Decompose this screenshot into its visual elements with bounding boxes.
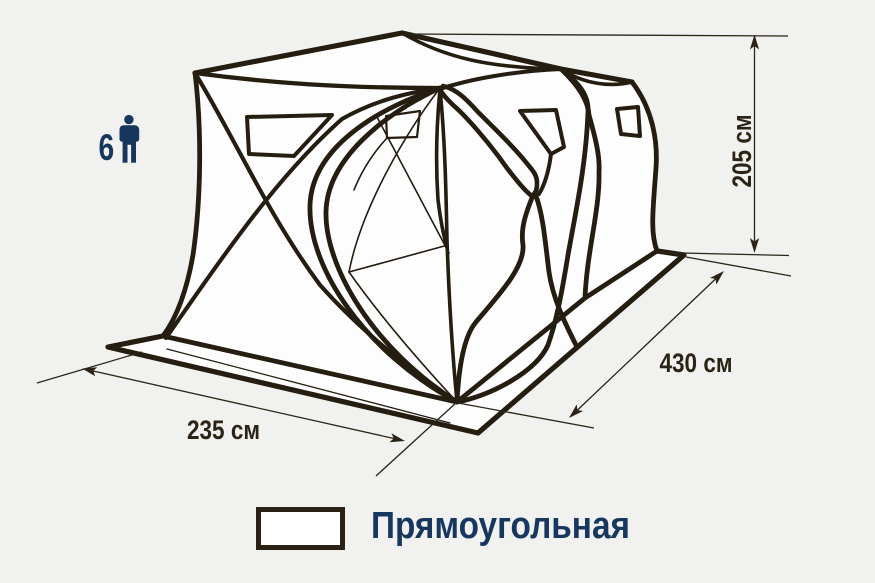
- svg-text:6: 6: [98, 126, 114, 168]
- svg-text:235 см: 235 см: [187, 415, 260, 445]
- svg-text:430 см: 430 см: [659, 348, 732, 378]
- svg-text:205 см: 205 см: [727, 114, 757, 187]
- svg-text:Прямоугольная: Прямоугольная: [371, 504, 630, 547]
